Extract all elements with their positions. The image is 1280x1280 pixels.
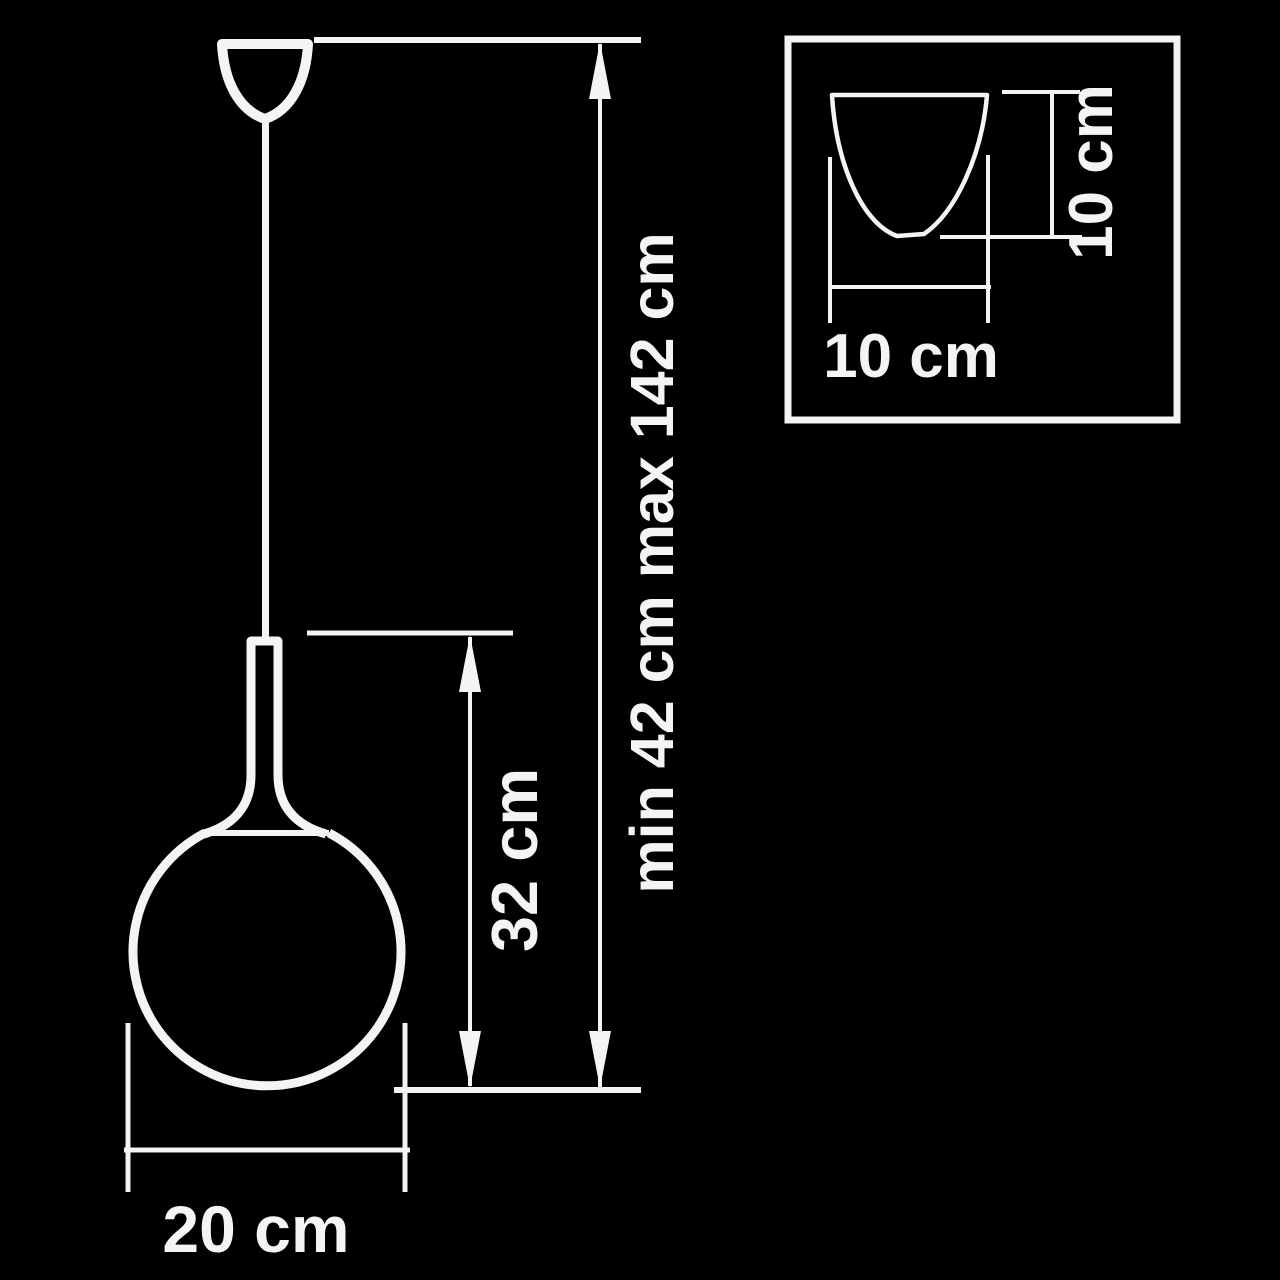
inset-canopy-width-label: 10 cm <box>823 322 999 391</box>
dimension-diagram: min 42 cm max 142 cm 32 cm 20 cm 10 cm 1… <box>0 0 1280 1280</box>
body-height-label: 32 cm <box>478 768 551 952</box>
arrow-down-icon <box>459 1031 481 1088</box>
inset-canopy-outline <box>832 95 987 236</box>
arrow-up-icon <box>589 42 611 99</box>
sphere-diameter-label: 20 cm <box>162 1192 349 1266</box>
pendant-lamp-drawing: min 42 cm max 142 cm 32 cm 20 cm 10 cm 1… <box>0 0 1280 1280</box>
overall-height-label: min 42 cm max 142 cm <box>618 232 686 893</box>
glass-sphere-outline <box>133 833 401 1086</box>
inset-canopy-height-label: 10 cm <box>1057 84 1126 260</box>
arrow-up-icon <box>459 635 481 692</box>
ceiling-canopy-outline <box>222 44 308 119</box>
arrow-down-icon <box>589 1031 611 1088</box>
lamp-neck-outline <box>204 641 326 834</box>
